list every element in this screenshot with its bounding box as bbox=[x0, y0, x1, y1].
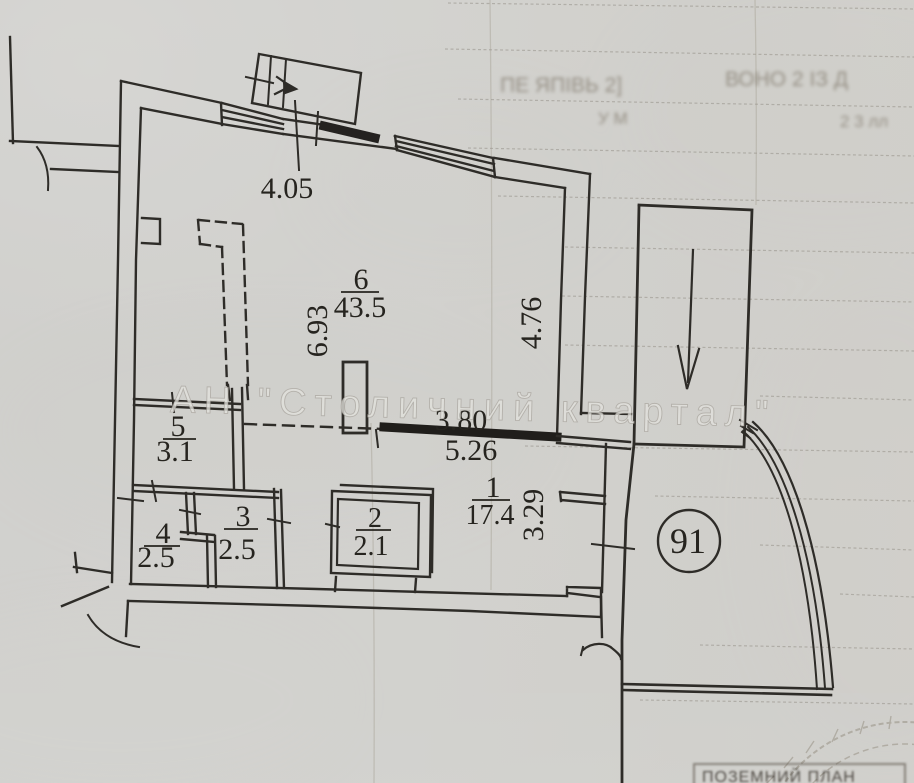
svg-text:У М: У М bbox=[598, 109, 628, 128]
svg-text:ПОЗЕМНИЙ ПЛАН: ПОЗЕМНИЙ ПЛАН bbox=[702, 767, 856, 783]
svg-text:3: 3 bbox=[236, 500, 251, 533]
svg-text:2 3 лл: 2 3 лл bbox=[840, 112, 888, 131]
svg-text:3.29: 3.29 bbox=[517, 489, 550, 542]
svg-text:4.76: 4.76 bbox=[515, 297, 548, 350]
svg-text:3.1: 3.1 bbox=[156, 435, 194, 468]
svg-text:43.5: 43.5 bbox=[334, 291, 387, 324]
svg-text:91: 91 bbox=[670, 521, 706, 561]
svg-text:2.5: 2.5 bbox=[218, 533, 256, 566]
svg-text:ПЕ ЯПІВЬ 2]: ПЕ ЯПІВЬ 2] bbox=[500, 74, 622, 97]
svg-text:5.26: 5.26 bbox=[445, 434, 498, 467]
svg-text:2.1: 2.1 bbox=[354, 531, 389, 562]
svg-text:ВОНО 2 ІЗ Д: ВОНО 2 ІЗ Д bbox=[725, 68, 848, 91]
svg-text:6.93: 6.93 bbox=[301, 305, 334, 358]
svg-text:4.05: 4.05 bbox=[261, 172, 314, 205]
svg-text:17.4: 17.4 bbox=[466, 500, 515, 531]
